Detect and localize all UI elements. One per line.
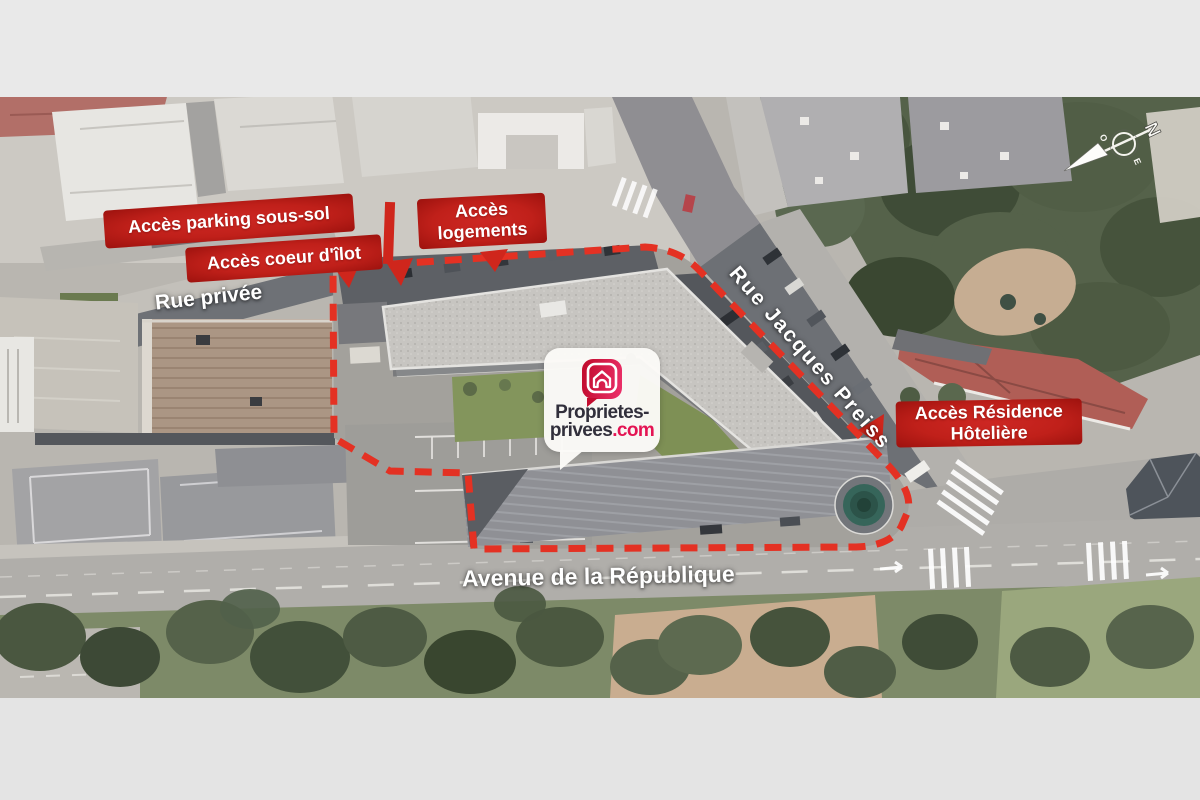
left-block xyxy=(0,297,335,445)
tan-roof-building xyxy=(142,319,332,440)
logo-text: Proprietes- privees.com xyxy=(550,404,654,440)
access-residence-label: Accès Résidence Hôtelière xyxy=(896,398,1083,447)
logo-line2: privees.com xyxy=(550,422,654,440)
logo-line2-dark: privees xyxy=(550,420,612,441)
access-logements-label: Accès logements xyxy=(417,193,547,250)
access-residence-line1: Accès Résidence xyxy=(915,400,1063,424)
aerial-plan-image: O E N Accès parking sous-sol Accès coeur… xyxy=(0,0,1200,800)
logo-bubble-icon xyxy=(582,359,622,399)
access-logements-line2: logements xyxy=(437,219,528,245)
letterbox-top xyxy=(0,0,1200,97)
letterbox-bottom xyxy=(0,698,1200,800)
access-residence-line2: Hôtelière xyxy=(950,422,1027,445)
street-label-avenue-republique: Avenue de la République xyxy=(462,561,735,593)
logo-card: Proprietes- privees.com xyxy=(544,348,660,452)
logo-house-icon xyxy=(582,359,622,399)
access-coeur-ilot-text: Accès coeur d'îlot xyxy=(206,243,361,275)
access-logements-line1: Accès xyxy=(454,198,508,222)
logo-card-tail xyxy=(560,450,584,470)
access-parking-text: Accès parking sous-sol xyxy=(127,203,330,238)
logo-line2-accent: .com xyxy=(612,420,654,441)
